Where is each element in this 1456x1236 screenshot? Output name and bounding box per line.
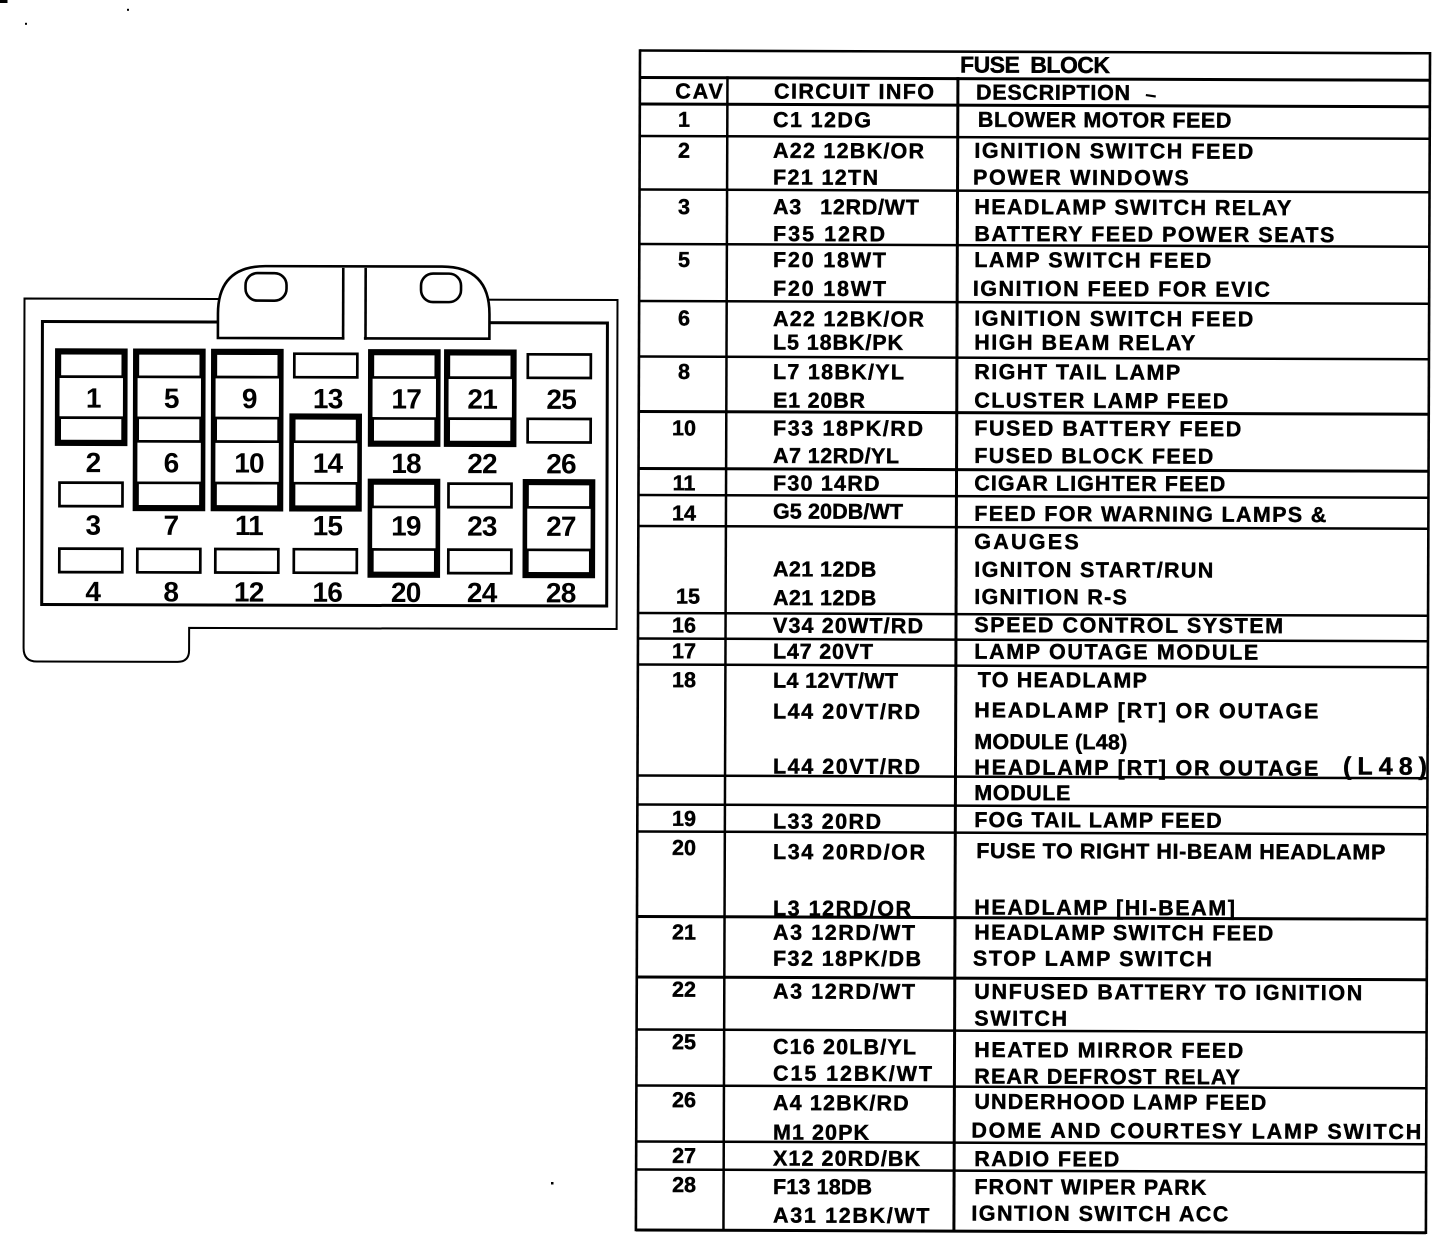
svg-text:11: 11: [673, 471, 696, 495]
svg-text:CIGAR LIGHTER FEED: CIGAR LIGHTER FEED: [974, 471, 1225, 496]
svg-text:F32 18PK/DB: F32 18PK/DB: [773, 947, 921, 972]
svg-text:13: 13: [313, 383, 343, 414]
svg-text:22: 22: [467, 448, 497, 479]
svg-text:15: 15: [676, 585, 700, 609]
svg-text:IGNITION SWITCH FEED: IGNITION SWITCH FEED: [974, 306, 1253, 331]
svg-text:A3 12RD/WT: A3 12RD/WT: [773, 921, 915, 945]
svg-text:SWITCH: SWITCH: [974, 1006, 1067, 1030]
svg-text:10: 10: [672, 416, 696, 440]
svg-text:L5 18BK/PK: L5 18BK/PK: [773, 330, 904, 354]
svg-text:3: 3: [85, 510, 100, 541]
svg-text:8: 8: [678, 360, 690, 384]
svg-text:C16 20LB/YL: C16 20LB/YL: [773, 1035, 916, 1059]
svg-text:23: 23: [467, 511, 497, 542]
svg-text:POWER WINDOWS: POWER WINDOWS: [973, 165, 1189, 190]
svg-text:RADIO FEED: RADIO FEED: [974, 1147, 1119, 1172]
svg-text:15: 15: [313, 510, 343, 541]
svg-text:RIGHT TAIL LAMP: RIGHT TAIL LAMP: [974, 360, 1180, 385]
svg-text:L4 12VT/WT: L4 12VT/WT: [773, 669, 898, 693]
svg-text:5: 5: [678, 248, 690, 272]
svg-text:L34 20RD/OR: L34 20RD/OR: [773, 840, 926, 865]
svg-text:IGNTION SWITCH ACC: IGNTION SWITCH ACC: [971, 1201, 1228, 1226]
svg-text:A31 12BK/WT: A31 12BK/WT: [773, 1203, 929, 1228]
svg-text:FRONT WIPER PARK: FRONT WIPER PARK: [974, 1175, 1207, 1200]
svg-text:L7 18BK/YL: L7 18BK/YL: [773, 360, 904, 384]
svg-text:FUSE TO RIGHT HI-BEAM HEADLAMP: FUSE TO RIGHT HI-BEAM HEADLAMP: [976, 839, 1385, 864]
svg-text:IGNITION FEED FOR EVIC: IGNITION FEED FOR EVIC: [973, 277, 1270, 302]
svg-text:19: 19: [672, 807, 696, 831]
svg-text:FUSE BLOCK: FUSE BLOCK: [960, 52, 1110, 79]
svg-text:GAUGES: GAUGES: [974, 530, 1078, 554]
svg-text:IGNITION SWITCH FEED: IGNITION SWITCH FEED: [974, 139, 1253, 164]
svg-text:HEADLAMP [RT] OR OUTAGE: HEADLAMP [RT] OR OUTAGE: [974, 698, 1318, 723]
svg-text:TO HEADLAMP: TO HEADLAMP: [978, 668, 1147, 693]
svg-text:L33 20RD: L33 20RD: [773, 809, 881, 833]
svg-text:F35 12RD: F35 12RD: [773, 222, 885, 246]
svg-text:FUSED BLOCK FEED: FUSED BLOCK FEED: [974, 444, 1213, 469]
svg-text:6: 6: [164, 447, 179, 478]
svg-text:7: 7: [163, 510, 178, 541]
svg-text:18: 18: [672, 668, 696, 692]
svg-text:STOP LAMP SWITCH: STOP LAMP SWITCH: [973, 946, 1212, 971]
svg-text:HEADLAMP [HI-BEAM]: HEADLAMP [HI-BEAM]: [974, 895, 1235, 920]
svg-text:DESCRIPTION: DESCRIPTION: [976, 80, 1130, 105]
svg-text:5: 5: [164, 383, 179, 414]
svg-text:HIGH BEAM RELAY: HIGH BEAM RELAY: [974, 330, 1195, 355]
svg-text:V34 20WT/RD: V34 20WT/RD: [773, 614, 923, 639]
svg-text:21: 21: [467, 384, 497, 415]
svg-text:A22 12BK/OR: A22 12BK/OR: [773, 307, 925, 332]
svg-text:A7 12RD/YL: A7 12RD/YL: [773, 444, 899, 468]
svg-text:4: 4: [85, 576, 101, 607]
svg-text:16: 16: [312, 577, 342, 608]
svg-text:11: 11: [235, 510, 263, 541]
svg-text:1: 1: [678, 108, 690, 132]
svg-text:LAMP OUTAGE MODULE: LAMP OUTAGE MODULE: [974, 640, 1258, 665]
svg-text:F20 18WT: F20 18WT: [773, 248, 886, 272]
svg-text:F21 12TN: F21 12TN: [773, 165, 878, 189]
svg-text:22: 22: [672, 978, 696, 1002]
svg-text:14: 14: [313, 448, 344, 479]
svg-text:LAMP SWITCH FEED: LAMP SWITCH FEED: [974, 248, 1211, 273]
svg-text:F30 14RD: F30 14RD: [773, 471, 880, 495]
svg-text:A4 12BK/RD: A4 12BK/RD: [773, 1091, 909, 1115]
svg-text:L44 20VT/RD: L44 20VT/RD: [773, 754, 920, 779]
svg-text:REAR DEFROST RELAY: REAR DEFROST RELAY: [974, 1064, 1240, 1089]
svg-text:HEADLAMP SWITCH FEED: HEADLAMP SWITCH FEED: [974, 920, 1273, 945]
svg-text:17: 17: [391, 383, 421, 414]
svg-text:C15 12BK/WT: C15 12BK/WT: [773, 1061, 932, 1086]
svg-text:MODULE (L48): MODULE (L48): [974, 730, 1127, 755]
svg-text:28: 28: [672, 1173, 696, 1197]
svg-text:20: 20: [391, 577, 421, 608]
svg-text:FUSED BATTERY FEED: FUSED BATTERY FEED: [974, 416, 1241, 441]
svg-text:14: 14: [672, 501, 696, 525]
svg-text:A22 12BK/OR: A22 12BK/OR: [773, 139, 925, 164]
svg-text:12: 12: [234, 577, 264, 608]
svg-text:L3 12RD/OR: L3 12RD/OR: [773, 896, 912, 920]
svg-text:E1 20BR: E1 20BR: [773, 388, 866, 412]
svg-text:25: 25: [546, 384, 576, 415]
svg-text:27: 27: [546, 511, 576, 542]
svg-text:A21 12DB: A21 12DB: [773, 557, 876, 581]
svg-text:19: 19: [391, 510, 421, 541]
svg-text:20: 20: [672, 836, 696, 860]
svg-text:17: 17: [672, 639, 696, 663]
svg-text:UNFUSED BATTERY TO IGNITION: UNFUSED BATTERY TO IGNITION: [974, 980, 1362, 1005]
svg-text:FEED FOR WARNING LAMPS &: FEED FOR WARNING LAMPS &: [974, 502, 1326, 527]
svg-text:9: 9: [242, 383, 257, 414]
svg-text:F20 18WT: F20 18WT: [773, 277, 886, 301]
svg-text:L44 20VT/RD: L44 20VT/RD: [773, 699, 920, 724]
svg-text:F33 18PK/RD: F33 18PK/RD: [773, 416, 923, 441]
svg-text:G5 20DB/WT: G5 20DB/WT: [773, 499, 903, 523]
svg-text:CIRCUIT INFO: CIRCUIT INFO: [774, 79, 934, 104]
svg-text:28: 28: [546, 577, 576, 608]
svg-text:L47 20VT: L47 20VT: [773, 640, 873, 664]
svg-text:10: 10: [234, 448, 264, 479]
svg-text:26: 26: [672, 1088, 696, 1112]
svg-text:BATTERY FEED POWER SEATS: BATTERY FEED POWER SEATS: [974, 222, 1334, 247]
svg-text:24: 24: [467, 577, 498, 608]
svg-text:CAV: CAV: [675, 79, 723, 103]
svg-text:UNDERHOOD LAMP FEED: UNDERHOOD LAMP FEED: [974, 1090, 1266, 1115]
svg-text:6: 6: [678, 306, 690, 330]
svg-text:IGNITON START/RUN: IGNITON START/RUN: [974, 558, 1213, 583]
svg-text:16: 16: [672, 613, 696, 637]
svg-text:8: 8: [163, 576, 178, 607]
svg-text:3: 3: [678, 195, 690, 219]
svg-text:X12 20RD/BK: X12 20RD/BK: [773, 1146, 921, 1171]
svg-text:1: 1: [86, 383, 101, 414]
svg-text:(L48): (L48): [1343, 752, 1427, 780]
svg-text:CLUSTER LAMP FEED: CLUSTER LAMP FEED: [974, 388, 1228, 413]
svg-text:2: 2: [86, 447, 101, 478]
svg-text:DOME AND COURTESY LAMP SWITCH: DOME AND COURTESY LAMP SWITCH: [971, 1118, 1421, 1144]
svg-text:IGNITION R-S: IGNITION R-S: [974, 585, 1127, 610]
svg-text:26: 26: [546, 448, 576, 479]
svg-text:21: 21: [672, 920, 696, 944]
svg-text:A3 12RD/WT: A3 12RD/WT: [773, 979, 915, 1003]
svg-text:BLOWER MOTOR FEED: BLOWER MOTOR FEED: [978, 108, 1232, 133]
svg-text:HEADLAMP SWITCH RELAY: HEADLAMP SWITCH RELAY: [974, 195, 1291, 220]
svg-text:FOG TAIL LAMP FEED: FOG TAIL LAMP FEED: [974, 808, 1221, 833]
svg-text:F13 18DB: F13 18DB: [773, 1175, 872, 1199]
svg-text:SPEED CONTROL SYSTEM: SPEED CONTROL SYSTEM: [974, 613, 1283, 638]
svg-text:M1 20PK: M1 20PK: [773, 1120, 870, 1144]
svg-text:C1 12DG: C1 12DG: [773, 108, 871, 132]
svg-text:25: 25: [672, 1030, 696, 1054]
svg-text:18: 18: [391, 448, 421, 479]
svg-text:A3 12RD/WT: A3 12RD/WT: [773, 195, 919, 220]
svg-text:MODULE: MODULE: [974, 781, 1070, 805]
svg-text:27: 27: [672, 1144, 696, 1168]
svg-text:HEATED MIRROR FEED: HEATED MIRROR FEED: [974, 1038, 1243, 1063]
svg-text:2: 2: [678, 139, 690, 163]
svg-text:A21 12DB: A21 12DB: [773, 586, 876, 610]
